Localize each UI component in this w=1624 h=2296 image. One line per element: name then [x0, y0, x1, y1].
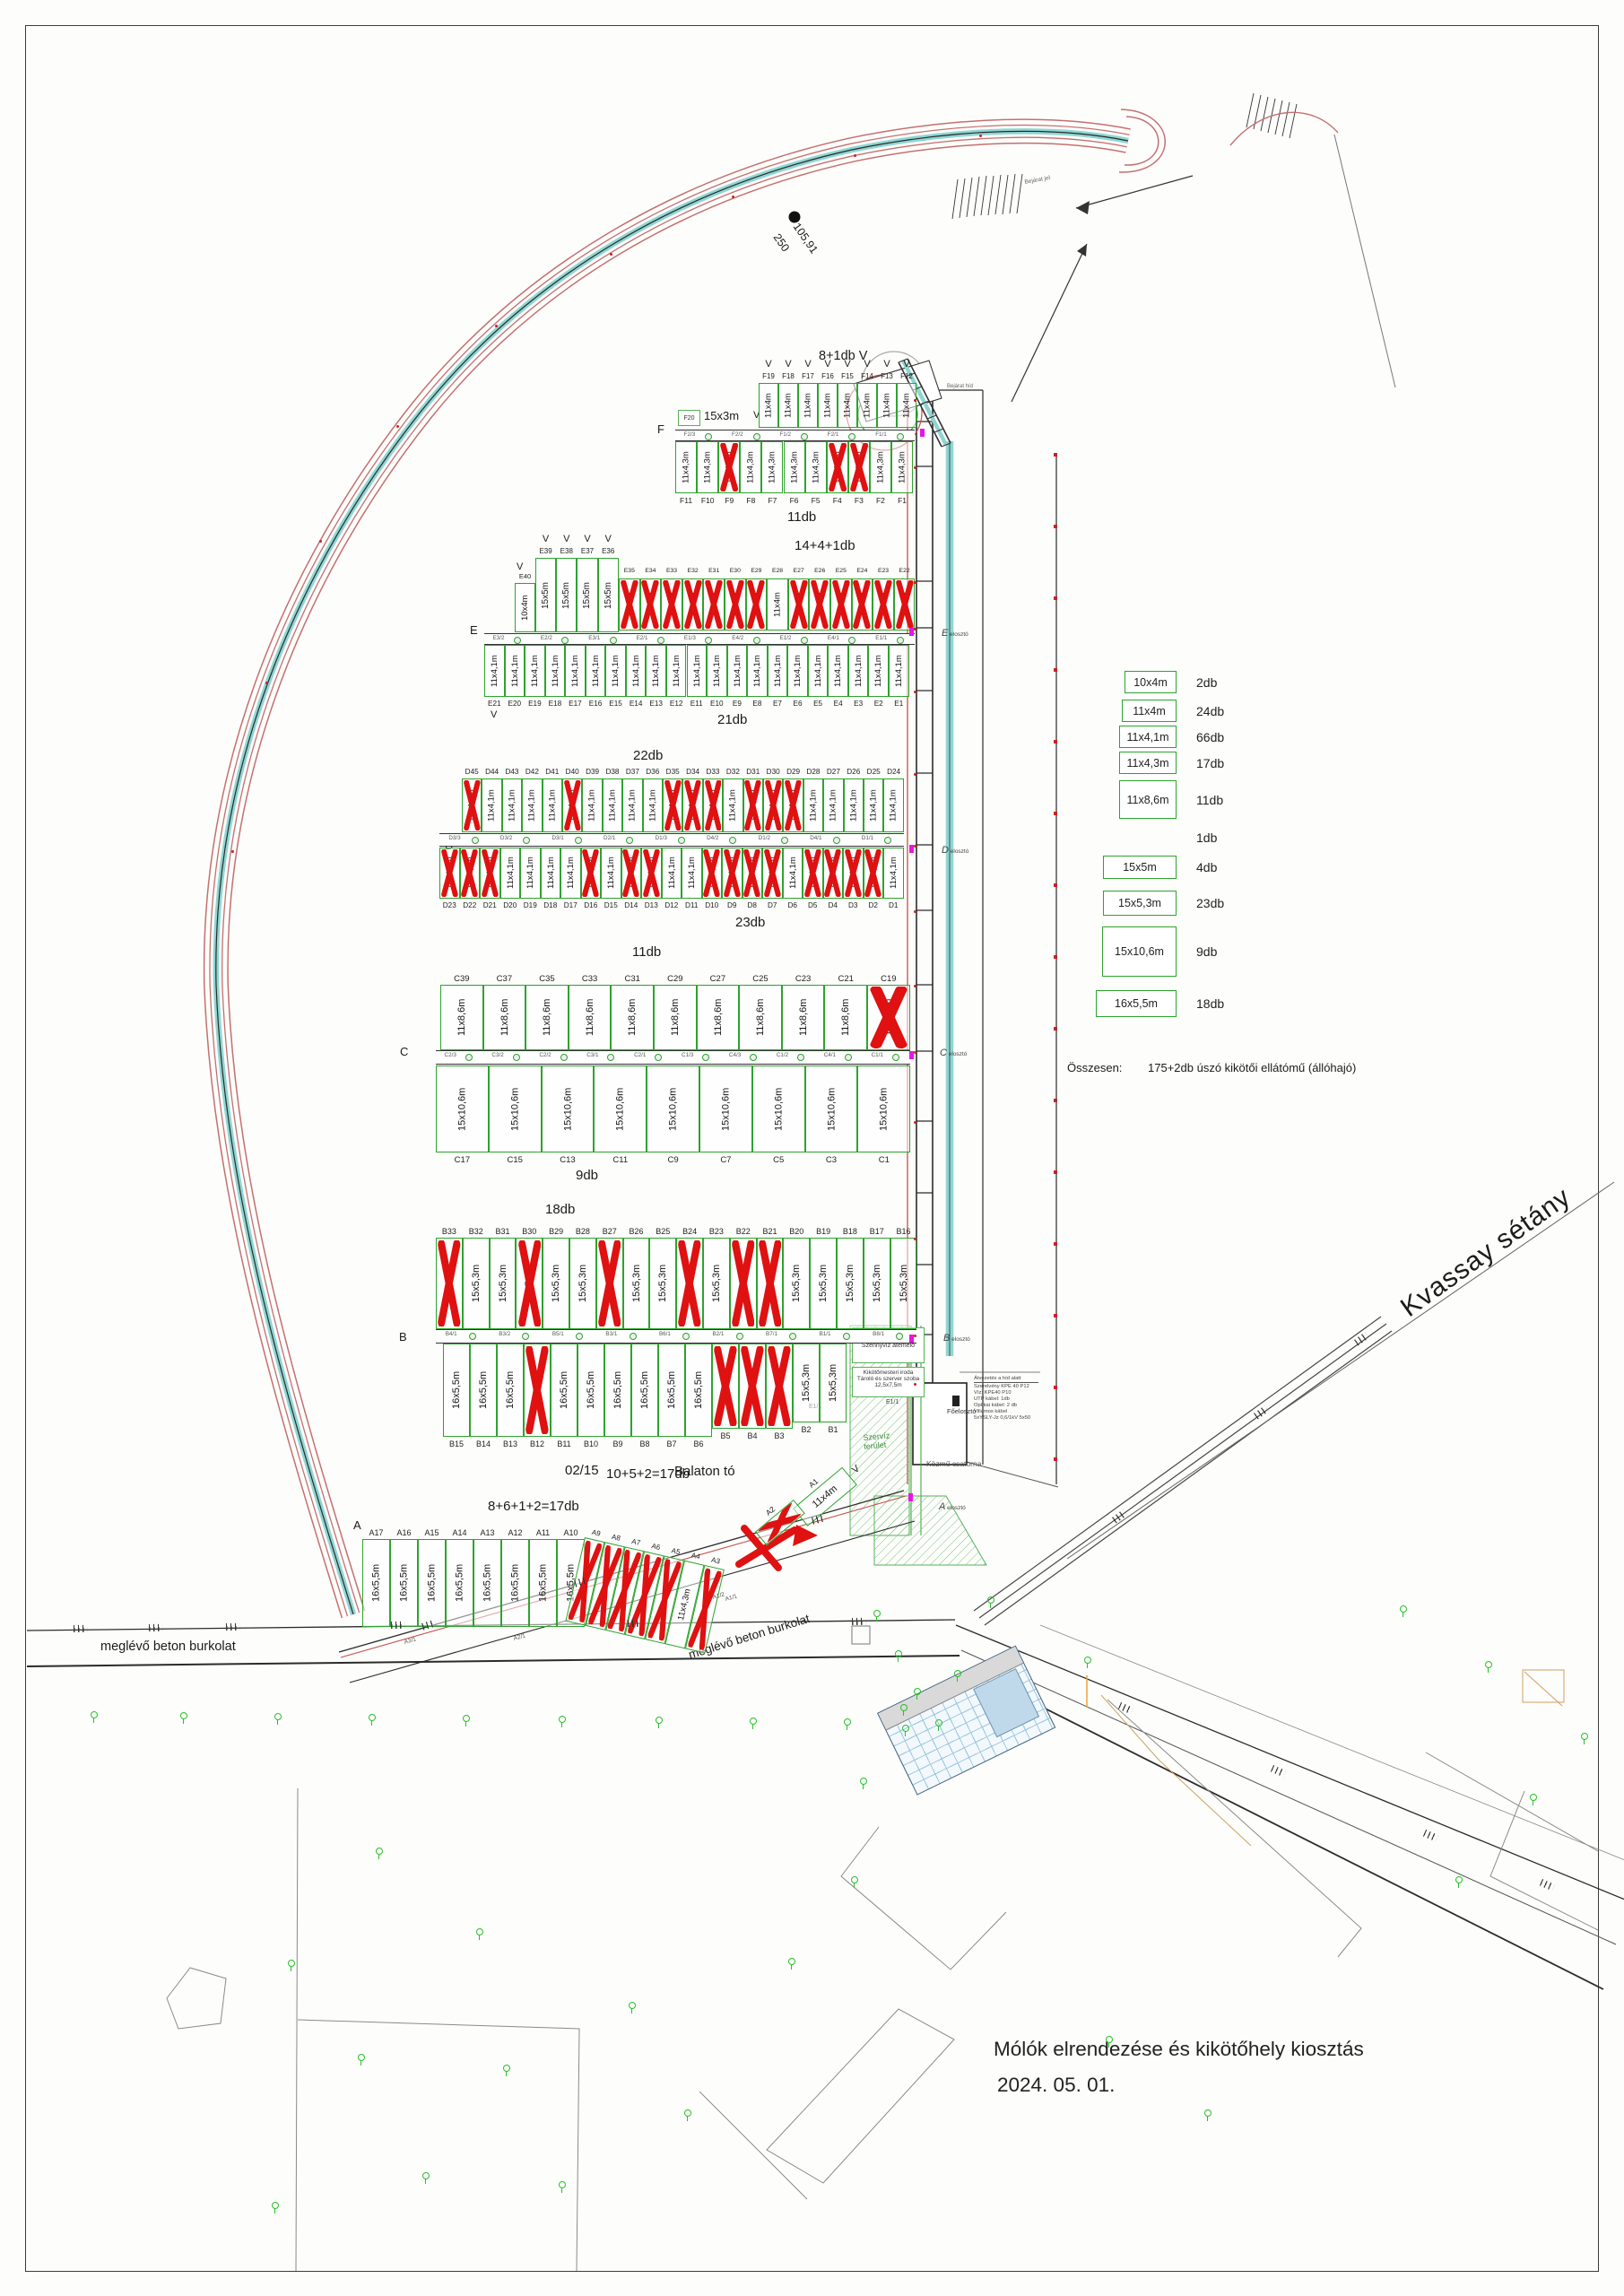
crossed-out-mark — [714, 1346, 737, 1426]
crossed-out-mark — [864, 849, 881, 897]
berth-size-label: 11x4m — [819, 384, 837, 427]
berth-B21: 15x5,3m — [757, 1238, 784, 1329]
berth-E6: 11x4,1m — [787, 645, 808, 697]
berth-size-label: 11x4,3m — [698, 442, 717, 492]
count-b-top: 18db — [545, 1203, 575, 1218]
pontoon-label-F2-3: F2/3 — [684, 431, 696, 438]
pontoon-label-B8-1: B8/1 — [873, 1331, 884, 1337]
pontoon-joint-circle — [610, 637, 617, 644]
berth-size-label: 11x8,6m — [484, 986, 525, 1049]
berth-D13: 11x4,1m — [641, 848, 662, 899]
v-mark: V — [759, 359, 778, 370]
distributor-label-c: C elosztó — [940, 1048, 967, 1058]
berth-size-label: 15x5,3m — [821, 1344, 846, 1422]
berth-size-label: 15x10,6m — [595, 1066, 646, 1152]
berth-E4: 11x4,1m — [828, 645, 848, 697]
berth-id-E1: E1 — [885, 700, 913, 708]
office-line-1: Tároló és szerver szoba — [853, 1376, 924, 1382]
utility-note-line-6: 5xYSLY-Jz 0,6/1kV 5x50 — [974, 1415, 1038, 1422]
pontoon-label-F1-1: F1/1 — [875, 431, 887, 438]
berth-size-label: 11x4,1m — [583, 779, 601, 831]
legend-count-8: 9db — [1196, 944, 1217, 959]
tree-icon — [421, 2172, 429, 2184]
crossed-out-mark — [705, 580, 723, 629]
berth-B20: 15x5,3m — [783, 1238, 810, 1329]
red-tick-mark — [1054, 525, 1057, 528]
pontoon-label-F1-2: F1/2 — [779, 431, 791, 438]
tree-icon — [873, 1610, 880, 1622]
pontoon-joint-circle — [797, 1054, 804, 1061]
crossed-out-mark — [768, 1346, 791, 1426]
berth-D35: 11x4,1m — [663, 778, 682, 832]
legend-count-5: 1db — [1196, 831, 1217, 845]
berth-id-C11: C11 — [590, 1155, 650, 1165]
v-mark: V — [598, 534, 619, 544]
pontoon-joint-circle — [892, 1054, 899, 1061]
berth-size-label: 11x4m — [878, 384, 896, 427]
berth-D14: 11x4,1m — [621, 848, 642, 899]
tree-icon — [843, 1718, 850, 1730]
pontoon-label-B3-1: B3/1 — [605, 1331, 617, 1337]
pontoon-joint-circle — [848, 637, 855, 644]
red-tick-mark — [1054, 1457, 1057, 1461]
count-f-bottom: 11db — [787, 510, 816, 526]
pontoon-label-C2-2: C2/2 — [539, 1052, 551, 1058]
v-mark: V — [818, 359, 838, 370]
berth-E15: 11x4,1m — [605, 645, 626, 697]
pontoon-joint-circle — [522, 1333, 529, 1340]
road-tick-marks — [852, 1618, 865, 1625]
berth-size-label: 11x4,1m — [627, 646, 646, 696]
berth-size-label: 15x10,6m — [753, 1066, 804, 1152]
pontoon-label-C1-1: C1/1 — [872, 1052, 883, 1058]
tree-icon — [628, 2002, 635, 2013]
red-dot-mark — [914, 1051, 916, 1054]
berth-C3: 15x10,6m — [805, 1065, 858, 1152]
berth-D27: 11x4,1m — [823, 778, 843, 832]
tree-icon — [655, 1717, 662, 1728]
entrance-bridge-label: Bejárat híd — [947, 384, 973, 390]
berth-size-label: 11x8,6m — [698, 986, 739, 1049]
berth-size-label: 11x8,6m — [569, 986, 611, 1049]
crossed-out-mark — [845, 849, 862, 897]
pontoon-label-E1-3: E1/3 — [684, 635, 696, 641]
legend-size-box-0: 10x4m — [1125, 671, 1177, 693]
berth-D3: 11x4,1m — [843, 848, 864, 899]
berth-D33: 11x4,1m — [703, 778, 723, 832]
tree-icon — [1580, 1733, 1587, 1744]
berth-E39: 15x5m — [535, 558, 556, 632]
berth-E20: 11x4,1m — [505, 645, 525, 697]
legend-size-box-7: 15x5,3m — [1103, 891, 1177, 916]
pontoon-joint-circle — [469, 1333, 476, 1340]
berth-D5: 11x4,1m — [803, 848, 823, 899]
v-mark: V — [556, 534, 577, 544]
berth-size-label: 11x4,3m — [806, 442, 826, 492]
berth-size-label: 11x4,1m — [667, 646, 686, 696]
berth-size-label: 11x4,1m — [748, 646, 767, 696]
berth-E7: 11x4,1m — [768, 645, 788, 697]
tree-icon — [934, 1719, 942, 1731]
berth-F6: 11x4,3m — [784, 441, 805, 493]
legend-count-7: 23db — [1196, 896, 1224, 910]
red-dot-mark — [319, 540, 322, 543]
pontoon-label-D1-2: D1/2 — [759, 835, 770, 841]
magenta-junction-mark — [920, 429, 925, 437]
berth-D9: 11x4,1m — [722, 848, 743, 899]
berth-E38: 15x5m — [556, 558, 577, 632]
berth-A15: 16x5,5m — [418, 1539, 446, 1627]
pontoon-joint-circle — [705, 637, 712, 644]
red-tick-mark — [1054, 955, 1057, 959]
berth-E26: 11x4m — [809, 578, 830, 631]
berth-D11: 11x4,1m — [682, 848, 702, 899]
berth-size-label: 15x10,6m — [647, 1066, 699, 1152]
red-dot-mark — [231, 850, 234, 853]
berth-size-label: 11x4,1m — [824, 779, 842, 831]
berth-size-label: 11x4,1m — [769, 646, 787, 696]
pontoon-label-B3-2: B3/2 — [499, 1331, 510, 1337]
red-dot-mark — [396, 425, 399, 428]
pontoon-joint-circle — [678, 837, 685, 844]
berth-D32: 11x4,1m — [723, 778, 743, 832]
pontoon-joint-circle — [781, 837, 788, 844]
walkway-b: B4/1B3/2B5/1B3/1B6/1B2/1B7/1B1/1B8/1 — [436, 1329, 916, 1344]
berth-D26: 11x4,1m — [844, 778, 864, 832]
crossed-out-mark — [765, 780, 782, 831]
berth-id-C5: C5 — [749, 1155, 809, 1165]
berth-B5 — [712, 1344, 739, 1429]
tree-icon — [901, 1725, 908, 1736]
berth-size-label: 15x5,3m — [624, 1239, 649, 1328]
berth-B18: 15x5,3m — [837, 1238, 864, 1329]
red-dot-mark — [914, 466, 916, 469]
pontoon-label-D4-1: D4/1 — [810, 835, 821, 841]
tree-icon — [749, 1718, 756, 1729]
red-tick-mark — [1054, 812, 1057, 815]
main-pier — [908, 386, 1058, 1535]
crossed-out-mark — [785, 780, 802, 831]
parcel-number: 02/15 — [565, 1464, 599, 1479]
berth-F11: 11x4,3m — [675, 441, 697, 493]
berth-B26: 15x5,3m — [623, 1238, 650, 1329]
red-dot-mark — [914, 1335, 916, 1337]
berth-size-label: 11x8,6m — [825, 986, 866, 1049]
count-e-top: 14+4+1db — [795, 539, 855, 554]
berth-size-label: 11x4,1m — [884, 848, 903, 898]
pontoon-label-E3-2: E3/2 — [493, 635, 505, 641]
pontoon-label-C3-2: C3/2 — [491, 1052, 503, 1058]
legend-total-value: 175+2db úszó kikötői ellátómű (állóhajó) — [1148, 1062, 1356, 1075]
berth-D31: 11x4,1m — [743, 778, 763, 832]
berth-size-label: 16x5,5m — [391, 1540, 417, 1626]
berth-A16: 16x5,5m — [390, 1539, 418, 1627]
red-tick-mark — [1054, 1170, 1057, 1174]
utility-note-line-5: Villamos kábel — [974, 1409, 1038, 1415]
berth-A14: 16x5,5m — [446, 1539, 473, 1627]
berth-size-label: 11x4,1m — [523, 779, 541, 831]
pontoon-joint-circle — [736, 1333, 743, 1340]
berth-D18: 11x4,1m — [541, 848, 561, 899]
pontoon-label-E3-1: E3/1 — [588, 635, 600, 641]
berth-C17: 15x10,6m — [436, 1065, 489, 1152]
pontoon-label-C2-3: C2/3 — [445, 1052, 456, 1058]
berth-E13: 11x4,1m — [646, 645, 666, 697]
berth-size-label: 15x10,6m — [858, 1066, 909, 1152]
tree-icon — [894, 1650, 901, 1662]
utility-note-line-0: Átvezetés a híd alatt — [974, 1376, 1038, 1383]
pontoon-joint-circle — [472, 837, 479, 844]
count-a: 8+6+1+2=17db — [488, 1500, 579, 1515]
berth-C29: 11x8,6m — [654, 985, 697, 1050]
crossed-out-mark — [732, 1240, 755, 1326]
red-dot-mark — [914, 910, 916, 913]
berth-size-label: 16x5,5m — [578, 1344, 604, 1436]
berth-B15: 16x5,5m — [443, 1344, 470, 1437]
pontoon-label-C4-1: C4/1 — [824, 1052, 836, 1058]
berth-D36: 11x4,1m — [643, 778, 663, 832]
berth-B10: 16x5,5m — [578, 1344, 604, 1437]
legend-size-box-1: 11x4m — [1122, 700, 1177, 722]
berth-size-label: 16x5,5m — [632, 1344, 657, 1436]
berth-A17: 16x5,5m — [362, 1539, 390, 1627]
tree-icon — [1105, 2036, 1112, 2048]
office-annotation: Kikötőmesteri irodaTároló és szerver szo… — [852, 1367, 925, 1397]
crossed-out-mark — [678, 1240, 701, 1326]
berth-F18: 11x4m — [778, 383, 798, 428]
berth-D16: 11x4,1m — [581, 848, 602, 899]
berth-size-label: 15x5,3m — [491, 1239, 516, 1328]
berth-id-C17: C17 — [432, 1155, 492, 1165]
berth-size-label: 11x4,1m — [809, 646, 828, 696]
berth-size-label: 11x4,1m — [506, 646, 525, 696]
pontoon-joint-circle — [753, 433, 760, 440]
berth-size-label: 11x4,1m — [602, 848, 621, 898]
pontoon-joint-circle — [845, 1054, 852, 1061]
pontoon-joint-circle — [729, 837, 736, 844]
tree-icon — [1083, 1657, 1090, 1668]
pontoon-label-D1-3: D1/3 — [656, 835, 667, 841]
berth-id-D1: D1 — [880, 901, 908, 909]
berth-size-label: 16x5,5m — [605, 1344, 630, 1436]
v-mark: V — [877, 359, 897, 370]
crossed-out-mark — [705, 780, 722, 831]
berth-C37: 11x8,6m — [483, 985, 526, 1050]
pontoon-joint-circle — [789, 1333, 796, 1340]
drawing-title: Mólók elrendezése és kikötőhely kiosztás — [994, 2038, 1364, 2060]
pontoon-joint-circle — [750, 1054, 757, 1061]
red-tick-mark — [1054, 1099, 1057, 1102]
red-tick-mark — [1054, 668, 1057, 672]
pontoon-joint-circle — [561, 637, 569, 644]
berth-size-label: 11x4,1m — [623, 779, 641, 831]
berth-D28: 11x4,1m — [803, 778, 823, 832]
tree-icon — [787, 1958, 795, 1970]
berth-size-label: 11x4,1m — [604, 779, 621, 831]
pontoon-label-C1-2: C1/2 — [777, 1052, 788, 1058]
pontoon-joint-circle — [513, 1054, 520, 1061]
crossed-out-mark — [832, 580, 850, 629]
berth-F8: 11x4,3m — [740, 441, 761, 493]
e11-label: E1/1 — [886, 1399, 899, 1406]
berth-size-label: 11x4,1m — [606, 646, 625, 696]
utility-notes: Átvezetés a híd alattSzerelvény KPE 40 P… — [974, 1376, 1038, 1422]
berth-size-label: 15x5,3m — [794, 1344, 819, 1422]
berth-F16: 11x4m — [818, 383, 838, 428]
berth-size-label: 11x4,1m — [503, 779, 521, 831]
v-mark: V — [535, 534, 556, 544]
pontoon-label-B6-1: B6/1 — [659, 1331, 671, 1337]
berth-B7: 16x5,5m — [658, 1344, 685, 1437]
tree-icon — [850, 1876, 857, 1888]
berth-size-label: 15x5m — [536, 559, 555, 631]
crossed-out-mark — [464, 780, 481, 831]
road-tick-marks — [149, 1624, 162, 1631]
marina-site-plan: 8+1db V 11db 14+4+1db 21db 22db 23db 11d… — [0, 0, 1624, 2296]
berth-E10: 11x4,1m — [707, 645, 727, 697]
berth-E12: 11x4,1m — [666, 645, 687, 697]
red-dot-mark — [265, 682, 268, 684]
berth-D15: 11x4,1m — [601, 848, 621, 899]
berth-D42: 11x4,1m — [522, 778, 542, 832]
v-mark: V — [857, 359, 877, 370]
red-tick-mark — [1054, 1027, 1057, 1031]
crossed-out-mark — [622, 849, 639, 897]
red-tick-mark — [1054, 883, 1057, 887]
berth-B30: 15x5,3m — [516, 1238, 543, 1329]
berth-size-label: 11x4,1m — [724, 779, 742, 831]
pontoon-joint-circle — [523, 837, 530, 844]
crossed-out-mark — [641, 580, 659, 629]
legend-size-box-4: 11x8,6m — [1119, 780, 1177, 819]
crossed-out-mark — [564, 780, 581, 831]
pontoon-joint-circle — [801, 637, 808, 644]
service-area-line2: terület — [864, 1440, 887, 1451]
berth-size-label: 15x5,3m — [570, 1239, 595, 1328]
pontoon-joint-circle — [465, 1054, 473, 1061]
red-tick-mark — [1054, 740, 1057, 744]
berth-size-label: 11x4m — [898, 384, 916, 427]
pontoon-joint-circle — [626, 837, 633, 844]
legend-total-label: Összesen: — [1067, 1062, 1122, 1075]
berth-id-C15: C15 — [485, 1155, 545, 1165]
berth-size-label: 11x4,1m — [521, 848, 540, 898]
v-mark: V — [838, 359, 857, 370]
berth-F15: 11x4m — [838, 383, 857, 428]
pontoon-joint-circle — [705, 433, 712, 440]
berth-size-label: 16x5,5m — [474, 1540, 500, 1626]
pontoon-joint-circle — [848, 433, 855, 440]
tree-icon — [683, 2109, 690, 2121]
berth-size-label: 11x4,1m — [663, 848, 682, 898]
berth-C31: 11x8,6m — [611, 985, 654, 1050]
tree-icon — [179, 1712, 187, 1724]
v-mark: V — [897, 359, 916, 370]
berth-C21: 11x8,6m — [824, 985, 867, 1050]
road-tick-marks — [226, 1623, 239, 1631]
main-distributor-label: Főelosztó — [947, 1408, 977, 1415]
red-dot-mark — [914, 399, 916, 402]
berth-size-label: 16x5,5m — [444, 1344, 469, 1436]
tree-icon — [986, 1596, 994, 1608]
berth-B27: 15x5,3m — [596, 1238, 623, 1329]
berth-F12: 11x4m — [897, 383, 916, 428]
berth-size-label: 11x4,1m — [644, 779, 662, 831]
berth-size-label: 15x10,6m — [490, 1066, 541, 1152]
berth-size-label: 16x5,5m — [447, 1540, 473, 1626]
berth-size-label: 11x4m — [838, 384, 856, 427]
berth-C25: 11x8,6m — [739, 985, 782, 1050]
berth-D12: 11x4,1m — [662, 848, 682, 899]
berth-size-label: 11x4,1m — [543, 779, 561, 831]
tree-icon — [271, 2202, 278, 2213]
pontoon-joint-circle — [560, 1054, 568, 1061]
berth-size-label: 11x4,3m — [785, 442, 804, 492]
berth-size-label: 16x5,5m — [551, 1344, 577, 1436]
berth-C5: 15x10,6m — [752, 1065, 805, 1152]
pontoon-label-E4-1: E4/1 — [828, 635, 839, 641]
berth-D29: 11x4,1m — [783, 778, 803, 832]
berth-B1: 15x5,3m — [820, 1344, 847, 1422]
berth-E25: 11x4m — [830, 578, 852, 631]
berth-size-label: 11x4,1m — [728, 646, 747, 696]
pontoon-joint-circle — [514, 637, 521, 644]
pontoon-joint-circle — [657, 637, 664, 644]
berth-F14: 11x4m — [857, 383, 877, 428]
office-line-0: Kikötőmesteri iroda — [853, 1370, 924, 1376]
berth-F17: 11x4m — [798, 383, 818, 428]
berth-C11: 15x10,6m — [594, 1065, 647, 1152]
berth-size-label: 16x5,5m — [419, 1540, 445, 1626]
v-mark-e21: V — [491, 709, 497, 720]
berth-size-label: 11x4,1m — [482, 779, 500, 831]
crossed-out-mark — [764, 849, 781, 897]
red-dot-mark — [914, 691, 916, 693]
red-dot-mark — [914, 628, 916, 631]
berth-F5: 11x4,3m — [805, 441, 827, 493]
berth-C7: 15x10,6m — [699, 1065, 752, 1152]
berth-B16: 15x5,3m — [890, 1238, 917, 1329]
v-mark-e40: V — [517, 561, 523, 572]
berth-size-label: 11x8,6m — [526, 986, 568, 1049]
berth-D20: 11x4,1m — [500, 848, 521, 899]
tree-icon — [1455, 1876, 1462, 1888]
berth-E24: 11x4m — [852, 578, 873, 631]
berth-size-label: 11x4,1m — [884, 779, 902, 831]
berth-E17: 11x4,1m — [565, 645, 586, 697]
berth-size-label: 11x4,3m — [892, 442, 912, 492]
utility-note-line-1: Szerelvény KPE 40 P12 — [974, 1384, 1038, 1390]
berth-B4 — [739, 1344, 766, 1429]
tree-icon — [953, 1670, 960, 1682]
berth-C39: 11x8,6m — [440, 985, 483, 1050]
red-dot-mark — [914, 1121, 916, 1124]
pontoon-label-B2-1: B2/1 — [712, 1331, 724, 1337]
berth-E40: 10x4m — [515, 583, 535, 632]
red-dot-mark — [914, 985, 916, 987]
tree-icon — [1203, 2109, 1211, 2121]
berth-size-label: 11x4,1m — [869, 646, 888, 696]
crossed-out-mark — [790, 580, 808, 629]
distributor-label-e: E elosztó — [942, 628, 968, 639]
berth-size-label: 11x8,6m — [783, 986, 824, 1049]
berth-size-label: 11x4m — [858, 384, 876, 427]
red-dot-mark — [914, 773, 916, 776]
berth-size-label: 11x8,6m — [612, 986, 653, 1049]
red-dot-mark — [854, 154, 856, 157]
berth-E2: 11x4,1m — [868, 645, 889, 697]
tree-icon — [357, 2054, 364, 2066]
